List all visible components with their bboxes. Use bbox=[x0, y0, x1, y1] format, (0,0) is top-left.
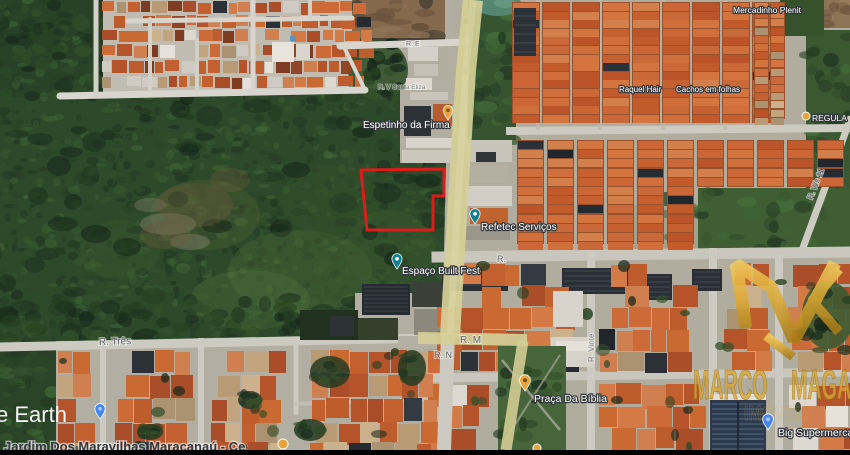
svg-text:e Earth: e Earth bbox=[0, 402, 67, 427]
svg-text:Espaço Built Fest: Espaço Built Fest bbox=[402, 266, 480, 277]
svg-text:R. V Santa Eliza: R. V Santa Eliza bbox=[378, 84, 426, 91]
svg-text:MAGALHÃES: MAGALHÃES bbox=[791, 361, 850, 408]
svg-text:Jardim Dos Maravilhas Maracana: Jardim Dos Maravilhas Maracanaú - Ce bbox=[4, 439, 245, 450]
svg-text:Raquel Hair: Raquel Hair bbox=[619, 85, 662, 94]
svg-text:R.: R. bbox=[497, 254, 506, 264]
svg-text:REGULA: REGULA bbox=[812, 113, 847, 123]
svg-text:Praça Da Bíblia: Praça Da Bíblia bbox=[534, 393, 607, 405]
svg-text:Cachos em folhas: Cachos em folhas bbox=[676, 85, 740, 94]
svg-text:Refetec Serviços: Refetec Serviços bbox=[481, 222, 557, 233]
svg-text:R. E: R. E bbox=[406, 41, 420, 48]
svg-text:Mercadinho Plenit: Mercadinho Plenit bbox=[733, 5, 802, 15]
svg-text:R. Três: R. Três bbox=[99, 336, 132, 348]
svg-text:IMÓVEIS: IMÓVEIS bbox=[744, 401, 811, 424]
svg-text:R. M: R. M bbox=[460, 335, 481, 346]
svg-text:R. N: R. N bbox=[434, 350, 452, 360]
svg-text:MARCO: MARCO bbox=[693, 361, 768, 408]
svg-text:Big Supermerca: Big Supermerca bbox=[778, 427, 850, 439]
svg-text:Espetinho da Firma: Espetinho da Firma bbox=[363, 120, 450, 131]
svg-text:R. Vinte: R. Vinte bbox=[587, 333, 596, 362]
